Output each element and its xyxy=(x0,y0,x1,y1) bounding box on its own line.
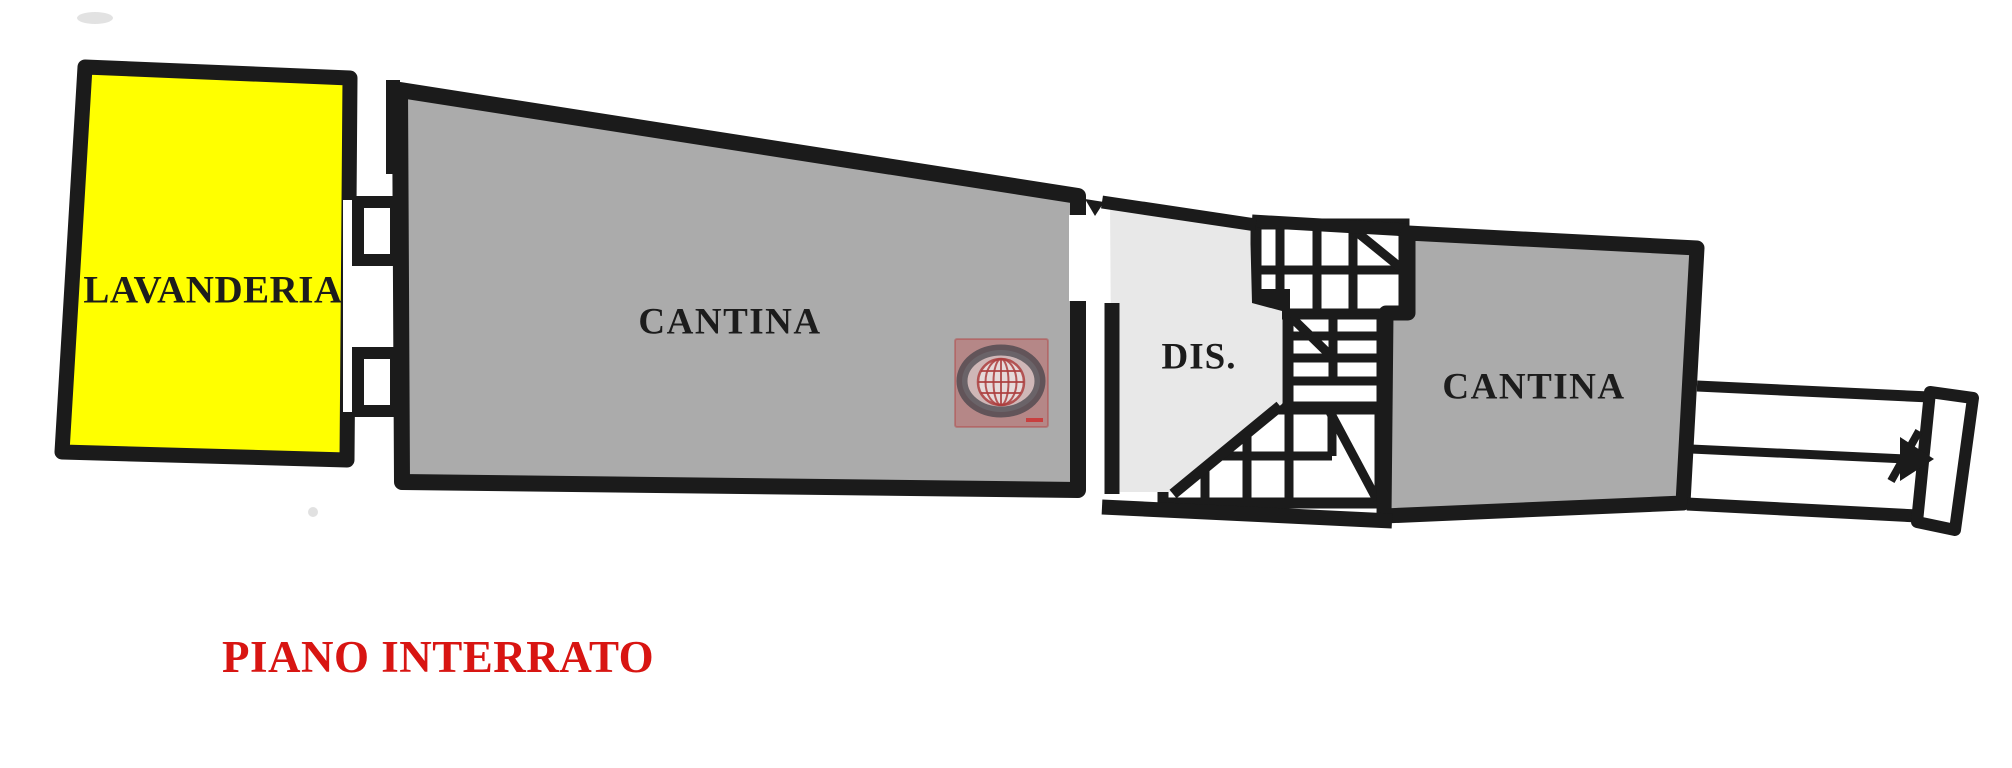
door-opening-cantina-left xyxy=(1069,215,1093,301)
floor-plan-page: LAVANDERIA CANTINA DIS. CANTINA PIANO IN… xyxy=(0,0,2012,768)
watermark-globe xyxy=(978,359,1024,405)
ramp-middle-line xyxy=(1691,449,1927,460)
wall-stub-lower-core xyxy=(364,359,390,405)
floor-plan-drawing xyxy=(0,0,2012,768)
ramp-top-line xyxy=(1697,386,1930,397)
wall-wedge xyxy=(1085,199,1104,216)
room-cantina-left xyxy=(400,90,1078,490)
room-lavanderia xyxy=(62,67,350,460)
ramp-corridor xyxy=(1687,386,1973,530)
ramp-bottom-line xyxy=(1687,504,1918,516)
globe-logo-watermark xyxy=(955,339,1048,427)
wall-stub-upper-core xyxy=(364,208,390,254)
scan-smudge xyxy=(77,12,113,24)
room-cantina-right xyxy=(1384,233,1697,516)
wall-bottom-middle xyxy=(1102,507,1392,521)
wall-top-stairs xyxy=(1252,221,1408,230)
wall-connector-top xyxy=(386,80,400,174)
watermark-fineprint xyxy=(1026,418,1043,422)
scan-smudge xyxy=(308,507,318,517)
